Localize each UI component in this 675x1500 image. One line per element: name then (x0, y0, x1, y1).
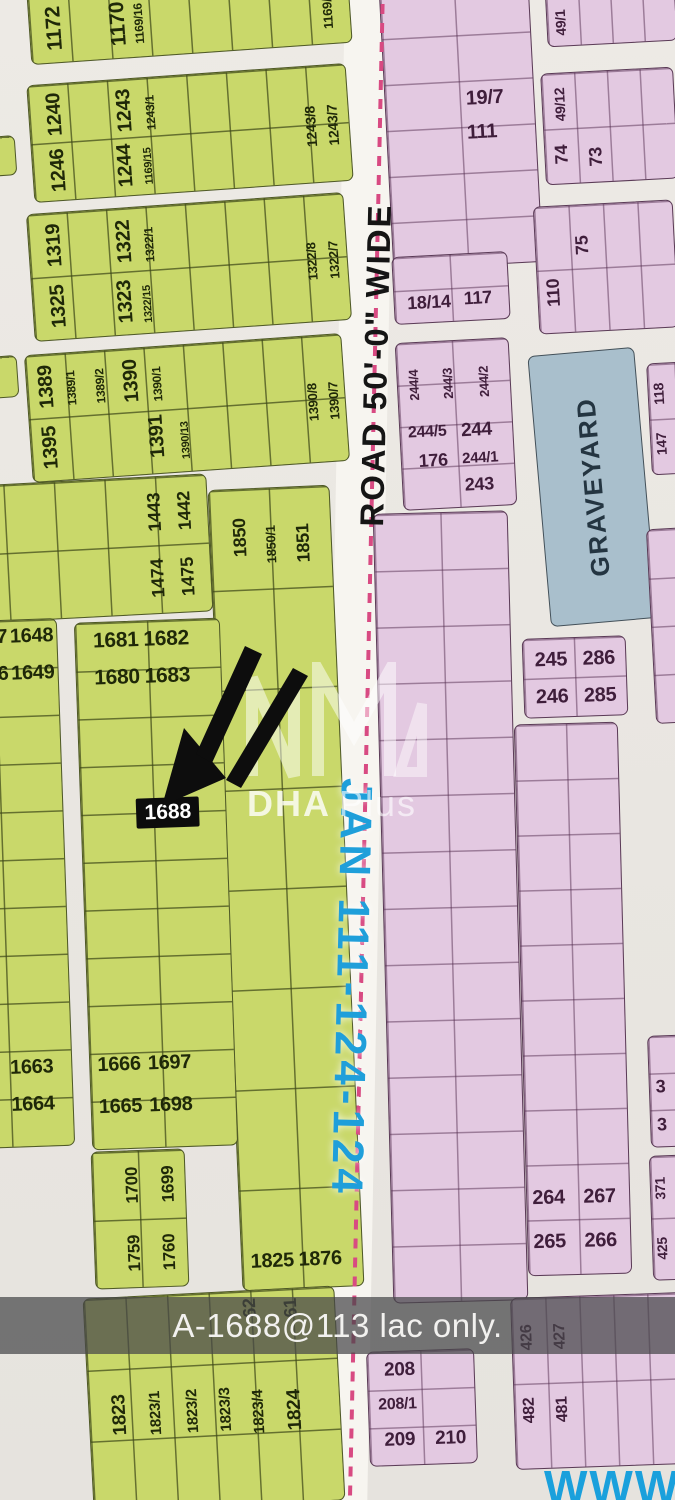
plot-block-g-1319: 131913221322/1132513231322/151322/81322/… (26, 192, 352, 342)
plot-label: 208 (384, 1360, 415, 1380)
plot-block-p-3: 33 (647, 1034, 675, 1148)
plot-label: 264 (532, 1187, 565, 1208)
plot-label: 1389/2 (93, 368, 107, 404)
plot-label: 1395 (39, 426, 62, 471)
plot-label: 244/4 (406, 369, 421, 401)
plot-block-p-mid (373, 510, 529, 1303)
plot-block-p-110: 75110 (533, 199, 675, 334)
plot-label: 244 (461, 419, 493, 440)
plot-label: 1322 (112, 219, 135, 264)
plot-label: 1389/1 (64, 370, 78, 406)
plot-label: 286 (582, 648, 615, 669)
plot-block-p-117: 18/14117 (391, 251, 510, 325)
plot-label: 1824 (284, 1389, 305, 1431)
plot-label: 244/1 (462, 449, 499, 466)
plot-label: 1170 (106, 1, 130, 47)
plot-block-g-1240: 1240124612431243/112441169/151243/81243/… (26, 63, 353, 203)
plot-label: 1244 (114, 143, 137, 188)
plot-label: 147 (653, 433, 668, 456)
plot-block-p-425: 371425 (649, 1154, 675, 1280)
plot-block-p-147: 11814711146 (646, 361, 675, 476)
plot-label: 1390/7 (326, 381, 342, 420)
plot-label: 73 (586, 146, 605, 166)
plot-block-g-1389: 13891389/11389/213901390/1139513911390/1… (24, 333, 350, 483)
plot-label: 1823/1 (147, 1391, 164, 1436)
plot-label: 75 (572, 235, 591, 255)
plot-label: 1850/1 (264, 525, 279, 563)
plot-label: 18/14 (407, 292, 451, 312)
plot-label: 1648 (10, 625, 54, 646)
plot-block-g-sliver1 (0, 135, 17, 177)
plot-label: 1390/8 (305, 382, 321, 421)
website-label: WWW. (544, 1460, 675, 1500)
plot-label: 1240 (43, 92, 66, 137)
plot-label: 244/3 (441, 367, 456, 399)
plot-label: 1243/8 (302, 106, 319, 148)
plot-label: 481 (554, 1396, 571, 1422)
plot-block-p-49-12: 49/127473 (540, 67, 675, 186)
plot-label: 1663 (10, 1056, 54, 1077)
plot-label: 1850 (230, 518, 250, 558)
pointer-arrow-icon (150, 628, 330, 818)
plot-block-p-244: 244/4244/3244/2244/5244176244/1243 (395, 337, 518, 511)
plot-label: 1699 (159, 1165, 177, 1202)
plot-label: 1700 (122, 1167, 140, 1204)
plot-label: 3 (655, 1077, 665, 1095)
plot-block-p-49-1: 49/1 (544, 0, 675, 47)
caption-text: A-1688@113 lac only. (172, 1307, 502, 1345)
plot-label: 1681 (93, 629, 139, 652)
plot-label: 1169/9 (319, 0, 335, 30)
plot-label: 1680 (94, 666, 140, 689)
plot-label: 1243/7 (324, 104, 341, 146)
plot-block-g-1474: 1443144214741475 (0, 473, 213, 624)
plot-label: 19/7 (465, 87, 504, 109)
plot-label: 1391 (146, 414, 169, 459)
plot-label: 1666 (97, 1053, 141, 1074)
plot-label: 176 (418, 450, 448, 470)
plot-label: 371 (653, 1177, 668, 1200)
plot-label: 1389 (35, 364, 58, 409)
plot-label: 267 (583, 1186, 616, 1207)
plot-label: 74 (552, 145, 571, 165)
plot-label: 1474 (147, 558, 167, 598)
plot-label: 1172 (42, 5, 66, 51)
plot-block-p-111: 19/7111 (379, 0, 543, 270)
plot-label: 1665 (99, 1096, 143, 1117)
plot-label: 1390 (120, 358, 143, 403)
plot-label: 6 (0, 663, 9, 683)
plot-label: 111 (466, 121, 497, 143)
plot-label: 1649 (11, 662, 55, 683)
plot-block-g-1648: 716486164916631664 (0, 618, 75, 1150)
plot-label: 482 (522, 1397, 539, 1423)
plot-label: 110 (544, 278, 563, 307)
plot-label: 265 (533, 1231, 566, 1252)
plot-label: 1823 (109, 1394, 130, 1436)
plot-label: 266 (584, 1230, 617, 1251)
plot-block-g-1759: 1700169917591760 (91, 1148, 190, 1289)
plot-label: 1876 (298, 1248, 342, 1270)
plot-label: 1322/1 (142, 227, 156, 263)
plot-label: 209 (384, 1430, 415, 1450)
plot-label: 1760 (160, 1233, 178, 1270)
plot-label: 1322/7 (326, 240, 342, 279)
plot-block-p-208: 208208/1209210 (366, 1348, 478, 1467)
plot-block-g-sliver2 (0, 355, 19, 399)
plot-label: 1322/15 (142, 285, 156, 323)
plot-label: 1169/15 (142, 147, 156, 185)
plot-label: 1390/1 (150, 366, 164, 402)
plot-label: 1319 (43, 223, 66, 268)
plot-block-p-264: 264267265266 (514, 722, 632, 1277)
plot-label: 1759 (125, 1235, 143, 1272)
plot-label: 1325 (47, 284, 70, 329)
plot-block-p-245: 245286246285 (522, 635, 629, 719)
plot-label: 1475 (178, 556, 198, 596)
plot-label: 49/1 (553, 9, 568, 36)
plot-label: 117 (463, 288, 492, 307)
map-root: 117211701169/161169/91240124612431243/11… (0, 0, 675, 1500)
plot-label: 1243/1 (143, 95, 157, 131)
plot-label: 245 (534, 649, 567, 670)
road-label: ROAD 50'-0" WIDE (353, 203, 399, 527)
plot-block-p-edge-mid (646, 527, 675, 724)
plot-label: 285 (584, 684, 617, 705)
map-blocks: 117211701169/161169/91240124612431243/11… (0, 0, 675, 1500)
plot-label: 1323 (113, 279, 136, 324)
plot-label: 1243 (113, 89, 136, 134)
plot-label: 1169/16 (131, 3, 146, 44)
plot-label: 118 (651, 382, 666, 404)
plot-label: 246 (536, 686, 569, 707)
plot-block-g-1169: 117211701169/161169/9 (25, 0, 352, 65)
plot-block-graveyard: GRAVEYARD (527, 347, 657, 627)
plot-label: 244/2 (477, 365, 492, 397)
plot-label: 208/1 (378, 1396, 417, 1413)
plot-label: 7 (0, 626, 8, 646)
plot-label: 1664 (11, 1093, 55, 1114)
plot-label: 1322/8 (304, 242, 320, 281)
route-label: JAN 111-124-124 (321, 777, 381, 1198)
plot-label: 210 (435, 1428, 466, 1448)
plot-label: GRAVEYARD (572, 396, 614, 577)
plot-label: 1851 (294, 523, 314, 563)
plot-label: 1246 (47, 148, 70, 193)
plot-label: 1442 (174, 491, 194, 531)
plot-label: 1825 (250, 1250, 294, 1272)
plot-label: 1823/2 (183, 1389, 200, 1434)
plot-label: 3 (657, 1115, 667, 1133)
plot-label: 1390/13 (179, 420, 193, 458)
plot-label: 1698 (149, 1094, 193, 1115)
caption-bar: A-1688@113 lac only. (0, 1297, 675, 1354)
plot-label: 243 (464, 475, 494, 495)
plot-label: 1823/3 (217, 1387, 234, 1432)
plot-label: 1823/4 (250, 1390, 267, 1435)
plot-label: 49/12 (552, 87, 568, 121)
plot-label: 1443 (144, 493, 164, 533)
plot-label: 244/5 (408, 423, 447, 441)
plot-label: 425 (655, 1237, 670, 1260)
plot-label: 1697 (147, 1052, 191, 1073)
